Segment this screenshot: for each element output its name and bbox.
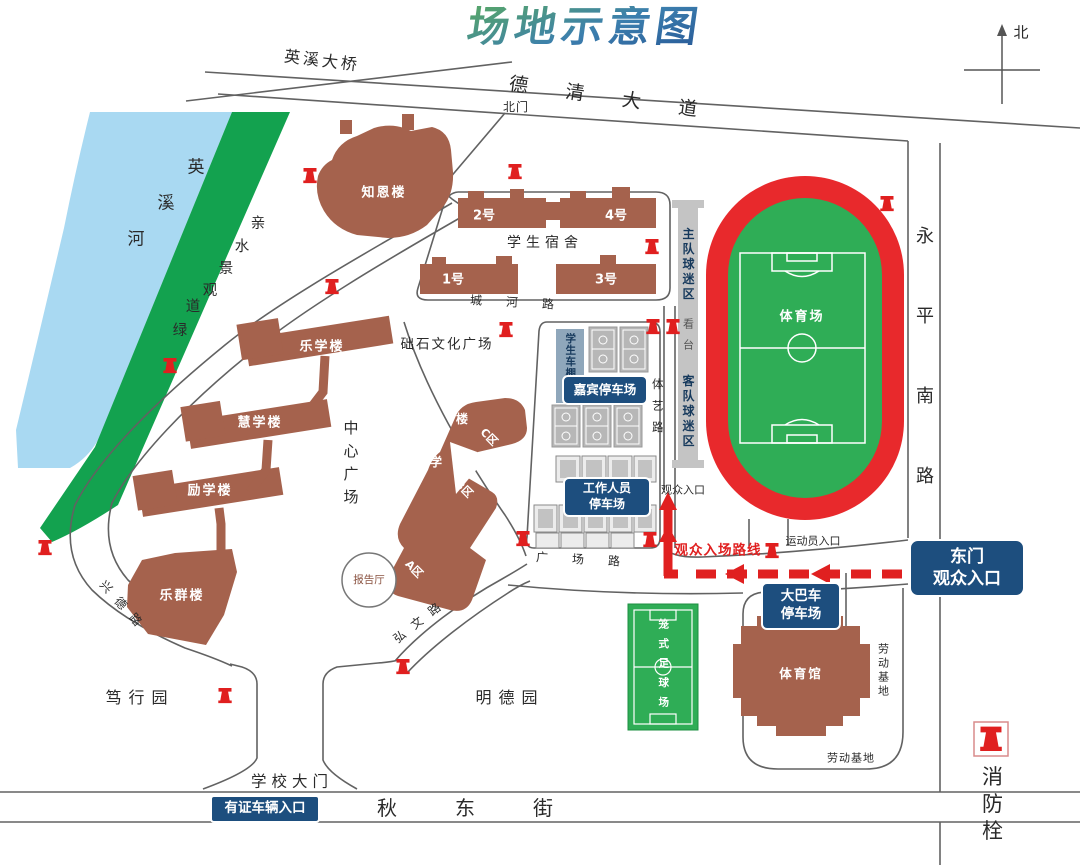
spectator-entrance-label: 观众入口 (661, 485, 705, 496)
fire-hydrant-icon (880, 196, 893, 211)
lequn-building-label: 乐群楼 (159, 590, 204, 603)
vip-parking-badge: 嘉宾停车场 (562, 375, 648, 405)
gymnasium-label: 体育馆 (779, 668, 823, 681)
compass-north-label: 北 (1013, 26, 1028, 41)
road-label-tiyi: 体艺路 (651, 378, 663, 443)
road-label-qianqiu-east: 千秋东街 (299, 798, 611, 818)
dorm-2-label: 2号 (473, 210, 495, 223)
zhien-building-shape (317, 126, 453, 238)
river-label-char: 溪 (158, 196, 175, 213)
page-title: 场地示意图 (465, 6, 706, 48)
staff-parking-badge: 工作人员 停车场 (563, 477, 651, 517)
duxing-garden-label: 笃行园 (105, 690, 174, 706)
hu1ixue-building-label: 慧学楼 (237, 417, 282, 430)
chushi-plaza-label: 础石文化广场 (401, 338, 494, 352)
lixue-building-label: 励学楼 (187, 485, 232, 498)
bus-parking-badge: 大巴车 停车场 (761, 582, 841, 630)
river-label-char: 河 (128, 232, 145, 249)
east-gate-line2: 观众入口 (911, 568, 1023, 590)
north-gate-label: 北门 (503, 101, 529, 113)
fire-hydrant-icon (303, 168, 316, 183)
dorm-3-label: 3号 (595, 274, 617, 287)
spectator-route-label: 观众入场路线 (675, 544, 762, 558)
permit-vehicle-label: 有证车辆入口 (212, 800, 318, 818)
greenway-label-char: 水 (235, 240, 250, 255)
mingde-garden-label: 明德园 (475, 690, 544, 706)
fire-hydrant-icon (38, 540, 51, 555)
labor-base-bottom-label: 劳动基地 (827, 753, 875, 764)
fire-hydrant-icon (218, 688, 231, 703)
fire-hydrant-icon (765, 543, 778, 558)
boxue-building-shape (388, 398, 527, 611)
lecture-hall-label: 报告厅 (353, 575, 385, 586)
stadium-track-and-field (706, 176, 904, 520)
greenway-label-char: 道 (186, 300, 201, 315)
dorm-4-label: 4号 (605, 210, 627, 223)
zhien-building-label: 知恩楼 (361, 187, 406, 200)
greenway-label-char: 亲 (251, 217, 266, 232)
student-shed-label: 学生车棚 (565, 333, 576, 379)
dorm-1-label: 1号 (442, 274, 464, 287)
fire-hydrant-icon (325, 279, 338, 294)
vip-parking-label: 嘉宾停车场 (564, 382, 646, 398)
bus-parking-line2: 停车场 (763, 606, 839, 624)
labor-base-right-label: 劳动基地 (878, 643, 889, 699)
north-arrow-icon (964, 24, 1040, 104)
bus-parking-line1: 大巴车 (763, 588, 839, 606)
greenway-label-char: 景 (219, 262, 234, 277)
river-label-char: 英 (188, 160, 205, 177)
grandstand-label: 看台 (683, 318, 694, 360)
permit-vehicle-badge: 有证车辆入口 (210, 795, 320, 823)
boxue-bo-label: 博 (384, 517, 396, 529)
staff-parking-line1: 工作人员 (565, 481, 649, 497)
fire-hydrant-icon (499, 322, 512, 337)
stadium-label: 体育场 (779, 311, 824, 324)
lexue-building-label: 乐学楼 (299, 341, 344, 354)
greenway-label-char: 绿 (173, 324, 188, 339)
greenway-label-char: 观 (203, 284, 218, 299)
boxue-xue-label: 学 (430, 456, 442, 468)
campus-site-map: 场地示意图 英溪大桥 德清大道 北门 北 永平南路 城河路 广场路 弘文路 兴德… (0, 0, 1080, 865)
legend-fire-hydrant (974, 722, 1008, 756)
fire-hydrant-icon (396, 659, 409, 674)
central-plaza-label: 中心广场 (343, 420, 358, 512)
staff-parking-line2: 停车场 (565, 497, 649, 513)
home-fans-zone-label: 主队球迷区 (682, 228, 694, 303)
school-gate-label: 学校大门 (251, 774, 333, 790)
dorm-area-label: 学生宿舍 (507, 236, 583, 250)
away-fans-zone-label: 客队球迷区 (682, 375, 694, 450)
fire-hydrant-icon (645, 239, 658, 254)
fire-hydrant-icon (666, 319, 679, 334)
east-gate-line1: 东门 (911, 546, 1023, 568)
road-label-yongping-south: 永平南路 (914, 226, 932, 546)
legend-fire-hydrant-label: 消防栓 (981, 766, 1002, 847)
east-gate-badge: 东门 观众入口 (909, 539, 1025, 597)
athlete-entrance-label: 运动员入口 (786, 536, 841, 547)
caged-pitch-label: 笼式足球场 (658, 618, 669, 716)
fire-hydrant-icon (643, 532, 656, 547)
boxue-lou-label: 楼 (456, 413, 468, 425)
fire-hydrant-icon (508, 164, 521, 179)
